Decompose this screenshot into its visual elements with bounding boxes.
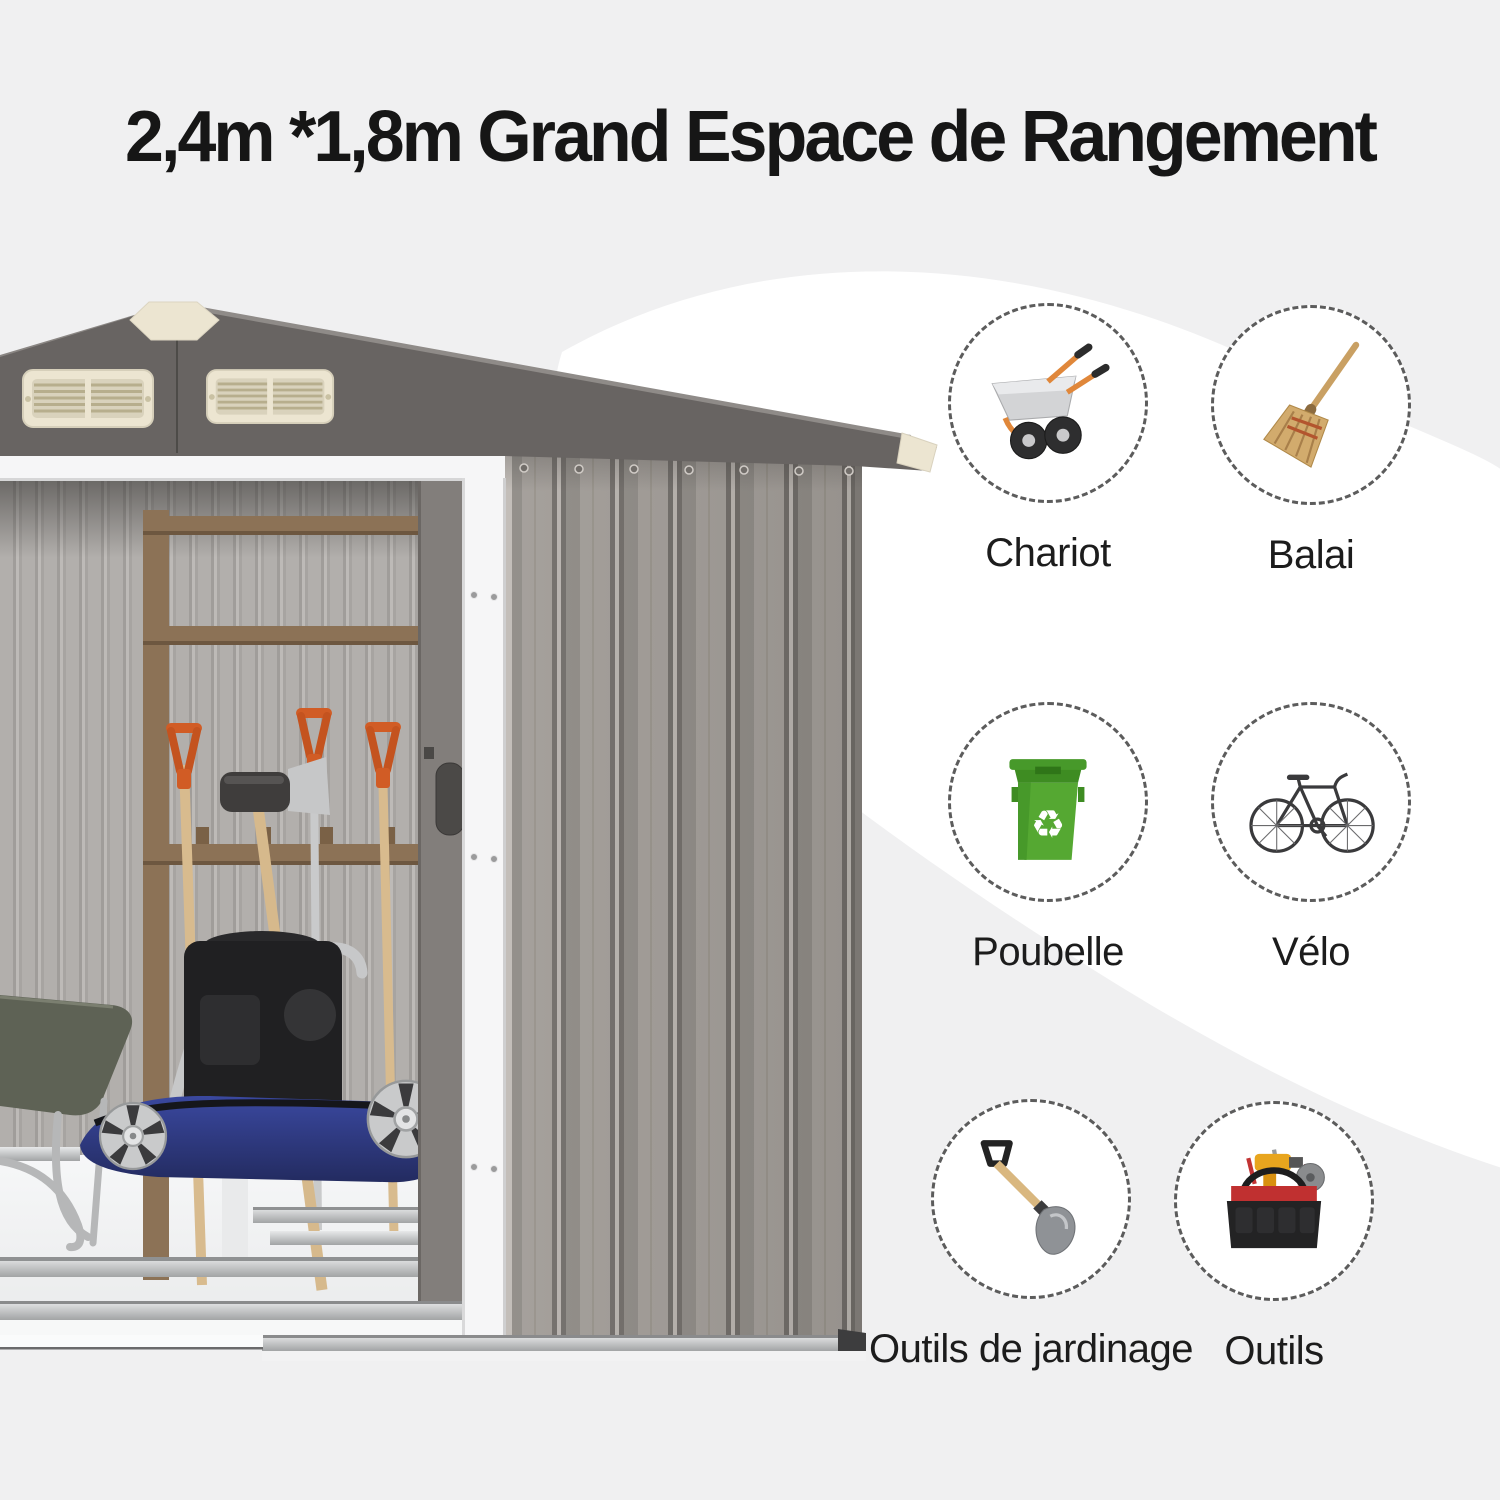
recycle-symbol-icon: ♻ xyxy=(1031,802,1066,847)
product-infographic: 2,4m *1,8m Grand Espace de Rangement xyxy=(0,0,1500,1500)
item-label: Outils de jardinage xyxy=(869,1327,1193,1372)
item-label: Poubelle xyxy=(972,930,1124,975)
gable-vent-right xyxy=(207,370,333,423)
garden-tools-icon xyxy=(956,1124,1106,1274)
shed-illustration xyxy=(0,295,940,1375)
item-label: Chariot xyxy=(985,531,1110,576)
storage-item-chariot: Chariot xyxy=(948,303,1148,563)
storage-item-outils: Outils xyxy=(1174,1101,1374,1361)
shed-roof xyxy=(0,302,937,472)
item-circle xyxy=(1211,702,1411,902)
toolbox-icon xyxy=(1199,1126,1349,1276)
door-side-trim xyxy=(462,478,506,1339)
item-circle xyxy=(948,303,1148,503)
item-circle xyxy=(1174,1101,1374,1301)
storage-item-outils-jardinage: Outils de jardinage xyxy=(931,1099,1131,1359)
shed-doorway-interior xyxy=(0,478,468,1338)
door-handle xyxy=(436,763,464,835)
door-track-trim xyxy=(0,453,521,481)
wheelbarrow-icon xyxy=(973,328,1123,478)
item-label: Outils xyxy=(1224,1329,1323,1374)
storage-item-balai: Balai xyxy=(1211,305,1411,565)
item-label: Vélo xyxy=(1272,930,1350,975)
item-circle xyxy=(1211,305,1411,505)
bicycle-icon xyxy=(1236,727,1386,877)
page-title: 2,4m *1,8m Grand Espace de Rangement xyxy=(23,96,1478,178)
gable-vent-left xyxy=(23,370,153,427)
storage-item-poubelle: ♻ Poubelle xyxy=(948,702,1148,962)
trash-bin-icon: ♻ xyxy=(973,727,1123,877)
inner-door-edge xyxy=(418,478,468,1338)
broom-icon xyxy=(1236,330,1386,480)
item-circle xyxy=(931,1099,1131,1299)
item-circle: ♻ xyxy=(948,702,1148,902)
storage-item-velo: Vélo xyxy=(1211,702,1411,962)
item-label: Balai xyxy=(1268,533,1354,578)
sliding-door-panel xyxy=(505,453,862,1339)
